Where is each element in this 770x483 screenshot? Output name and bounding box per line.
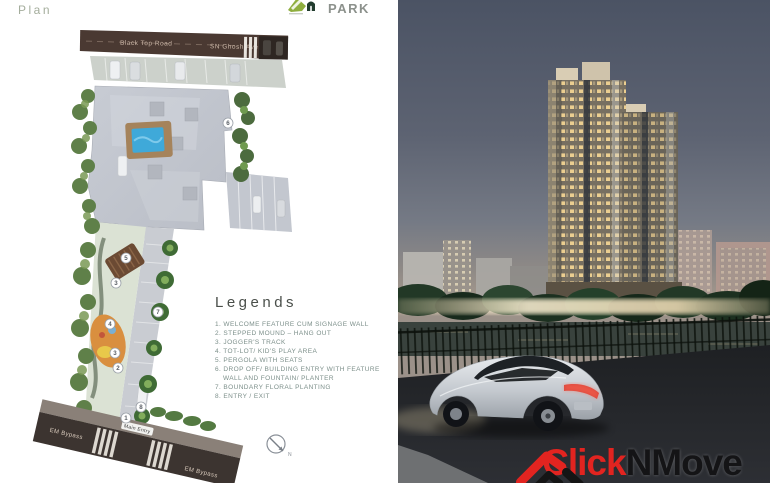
building-render xyxy=(398,0,770,483)
legend-item-3: 3. JOGGER'S TRACK xyxy=(215,338,395,347)
legend-item-5: 5. PERGOLA WITH SEATS xyxy=(215,356,395,365)
marker-2: 2 xyxy=(113,363,123,373)
roof-icon xyxy=(516,444,586,483)
legend-item-2: 2. STEPPED MOUND – HANG OUT xyxy=(215,329,395,338)
legend-item-1: 1. WELCOME FEATURE CUM SIGNAGE WALL xyxy=(215,320,395,329)
legends-panel: Legends 1. WELCOME FEATURE CUM SIGNAGE W… xyxy=(215,294,395,401)
legend-item-4: 4. TOT-LOT/ KID'S PLAY AREA xyxy=(215,347,395,356)
legend-item-6: 6. DROP OFF/ BUILDING ENTRY WITH FEATURE… xyxy=(215,365,395,383)
parking-court-right xyxy=(226,172,292,232)
top-road: Black Top Road SN Ghosh Ave xyxy=(80,30,288,60)
marker-1: 1 xyxy=(121,413,131,423)
marker-3a: 3 xyxy=(111,278,121,288)
pool xyxy=(125,121,173,159)
marker-8: 8 xyxy=(136,402,146,412)
render-panel: ClickNMove xyxy=(398,0,770,483)
svg-text:6: 6 xyxy=(226,120,230,127)
svg-text:3: 3 xyxy=(113,350,117,357)
marker-5: 5 xyxy=(121,253,131,263)
site-plan: Black Top Road SN Ghosh Ave xyxy=(0,0,395,483)
plan-panel: Plan PARK Black Top Road SN Ghosh A xyxy=(0,0,395,483)
light-streak xyxy=(398,299,770,314)
marker-4: 4 xyxy=(105,319,115,329)
tower-right xyxy=(622,104,678,302)
watermark-nmove: NMove xyxy=(626,442,742,483)
svg-text:2: 2 xyxy=(116,365,120,372)
zebra-crossing-top xyxy=(244,37,257,58)
svg-text:8: 8 xyxy=(139,404,143,411)
brochure-page: Plan PARK Black Top Road SN Ghosh A xyxy=(0,0,770,483)
parking-strip-top xyxy=(90,56,286,88)
legend-item-7: 7. BOUNDARY FLORAL PLANTING xyxy=(215,383,395,392)
svg-text:5: 5 xyxy=(124,255,128,262)
compass-icon: N xyxy=(267,435,292,458)
marker-3b: 3 xyxy=(110,348,120,358)
svg-text:3: 3 xyxy=(114,280,118,287)
marker-6: 6 xyxy=(223,118,233,128)
svg-text:4: 4 xyxy=(108,321,112,328)
legends-title: Legends xyxy=(215,294,395,311)
watermark-logo: ClickNMove xyxy=(516,444,768,483)
svg-text:7: 7 xyxy=(156,309,160,316)
top-road-label-1: Black Top Road xyxy=(120,40,173,48)
marker-7: 7 xyxy=(153,307,163,317)
tower-left xyxy=(548,62,626,302)
compass-north-label: N xyxy=(288,452,292,458)
legend-item-8: 8. ENTRY / EXIT xyxy=(215,392,395,401)
svg-text:1: 1 xyxy=(124,415,128,422)
building-footprint xyxy=(88,86,232,238)
